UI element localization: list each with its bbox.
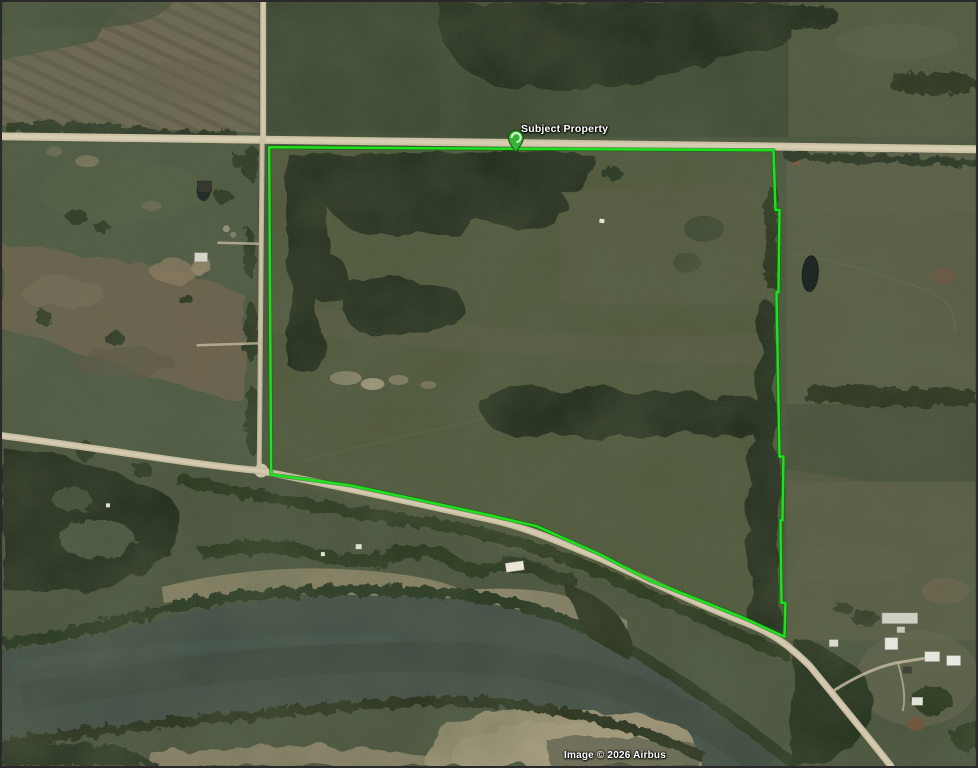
satellite-map-image: Subject Property Image © 2026 Airbus — [0, 0, 978, 768]
image-grain-overlay — [3, 2, 976, 766]
satellite-map — [2, 2, 976, 766]
